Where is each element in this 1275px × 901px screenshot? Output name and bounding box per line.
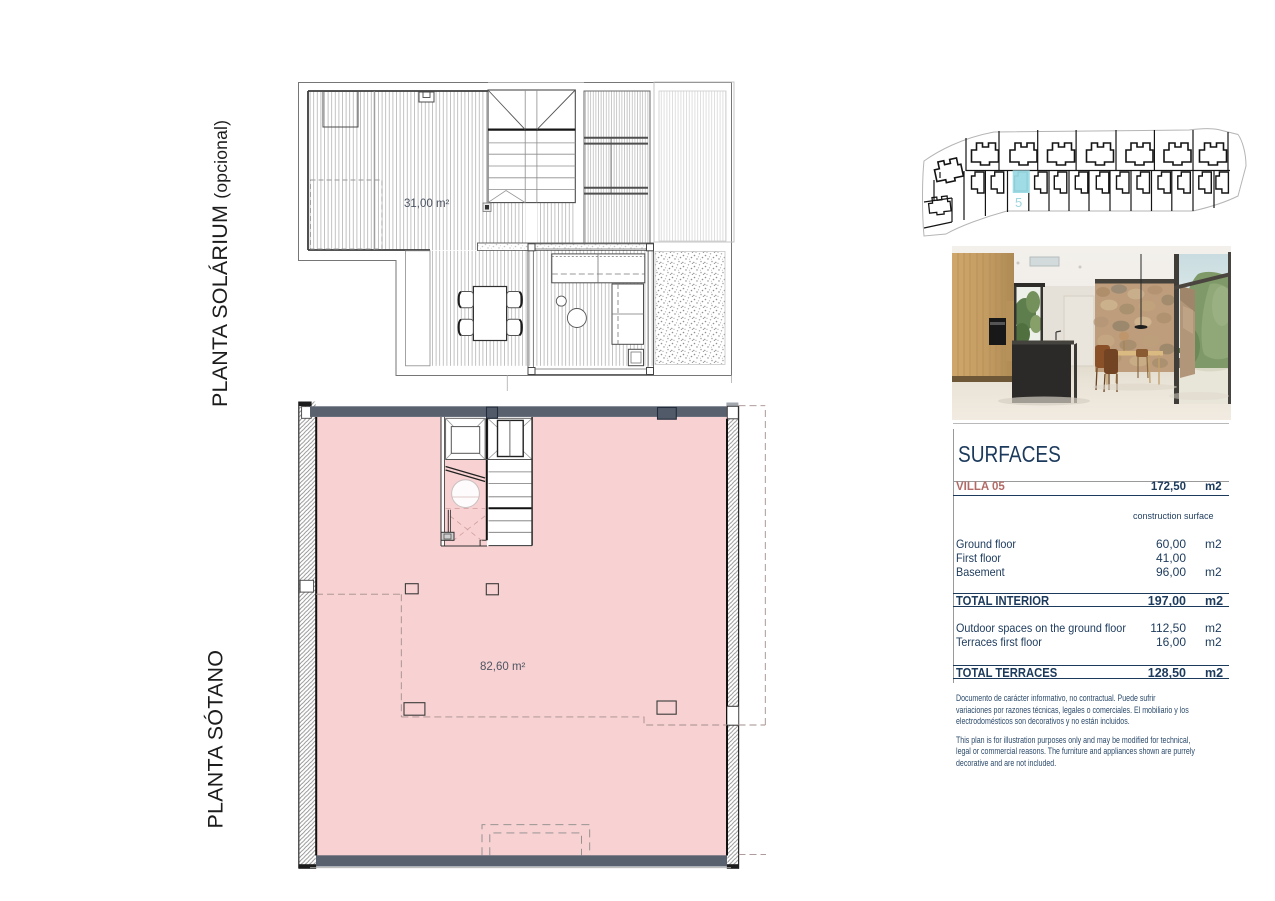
svg-text:82,60 m²: 82,60 m² [480, 661, 526, 673]
svg-text:31,00 m²: 31,00 m² [404, 198, 450, 210]
svg-text:5: 5 [1015, 195, 1022, 210]
